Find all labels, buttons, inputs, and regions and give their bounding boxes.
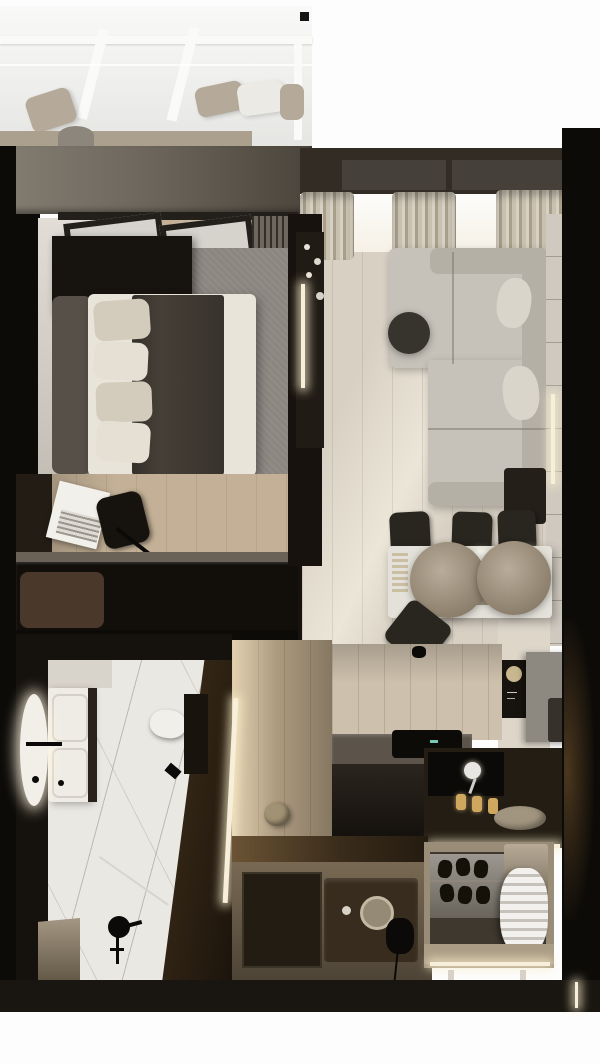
- right-wall-warm-glow: [564, 620, 594, 920]
- bottom-wall: [0, 980, 600, 1012]
- entry-lamp: [575, 982, 578, 1008]
- apartment-render: [0, 0, 600, 1064]
- outer-frame: [0, 0, 600, 1064]
